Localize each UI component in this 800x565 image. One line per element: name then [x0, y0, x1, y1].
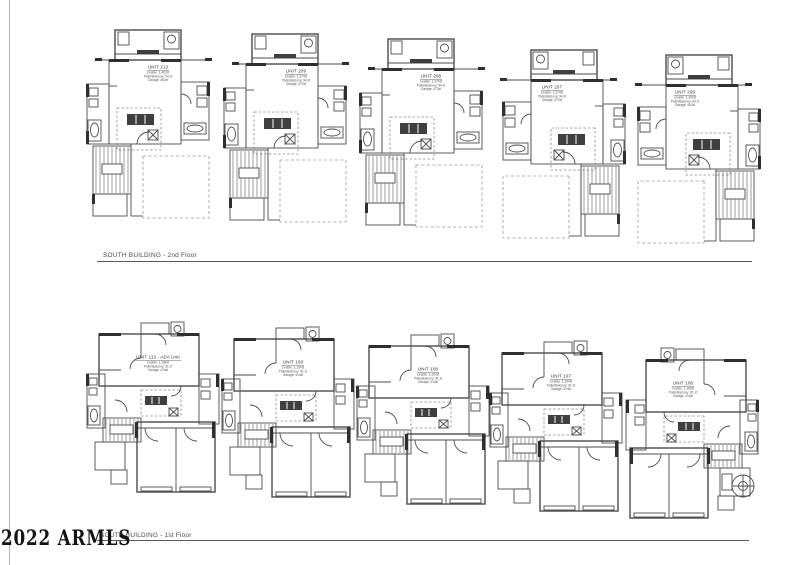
unit-garage: Garage: 414sf — [524, 388, 599, 392]
unit-garage: Garage: 414sf — [121, 369, 196, 373]
unit-plan-1f-3 — [356, 334, 489, 504]
unit-number: UNIT 113 - ADA Unit — [135, 355, 181, 361]
floor1-rule — [97, 540, 749, 541]
scanned-floorplan-page: { "watermark": "2022 ARMLS", "floor2": {… — [0, 0, 800, 565]
unit-garage: Garage: 414sf — [391, 381, 466, 385]
unit-number: UNIT 208 — [420, 74, 442, 80]
unit-plan-1f-5 — [626, 348, 759, 518]
unit-garage: Garage: 462sf — [648, 104, 723, 108]
unit-number: UNIT 108 — [417, 367, 439, 373]
unit-plan-1f-1 — [86, 322, 219, 492]
armls-watermark: 2022 ARMLS — [1, 525, 131, 550]
unit-number: UNIT 213 — [147, 65, 169, 71]
unit-number: UNIT 209 — [285, 69, 307, 75]
unit-number: UNIT 206 — [674, 90, 696, 96]
unit-plan-1f-4 — [489, 341, 622, 511]
patio-circle-detail — [722, 474, 754, 497]
unit-garage: Garage: 472sf — [259, 83, 334, 87]
unit-garage: Garage: 462sf — [121, 79, 196, 83]
unit-garage: Garage: 414sf — [256, 374, 331, 378]
unit-garage: Garage: 414sf — [646, 395, 721, 399]
unit-number: UNIT 107 — [550, 374, 572, 380]
unit-number: UNIT 106 — [672, 381, 694, 387]
unit-plan-1f-2 — [221, 327, 354, 497]
unit-plan-2f-4 — [500, 50, 626, 238]
unit-garage: Garage: 472sf — [515, 99, 590, 103]
unit-plan-2f-3 — [359, 39, 485, 227]
unit-plan-2f-5 — [635, 55, 761, 243]
unit-plan-2f-1 — [86, 30, 212, 218]
unit-number: UNIT 207 — [541, 85, 563, 91]
unit-garage: Garage: 472sf — [394, 88, 469, 92]
unit-number: UNIT 109 — [282, 360, 304, 366]
floor2-rule — [97, 261, 752, 262]
unit-plan-2f-2 — [223, 34, 349, 222]
